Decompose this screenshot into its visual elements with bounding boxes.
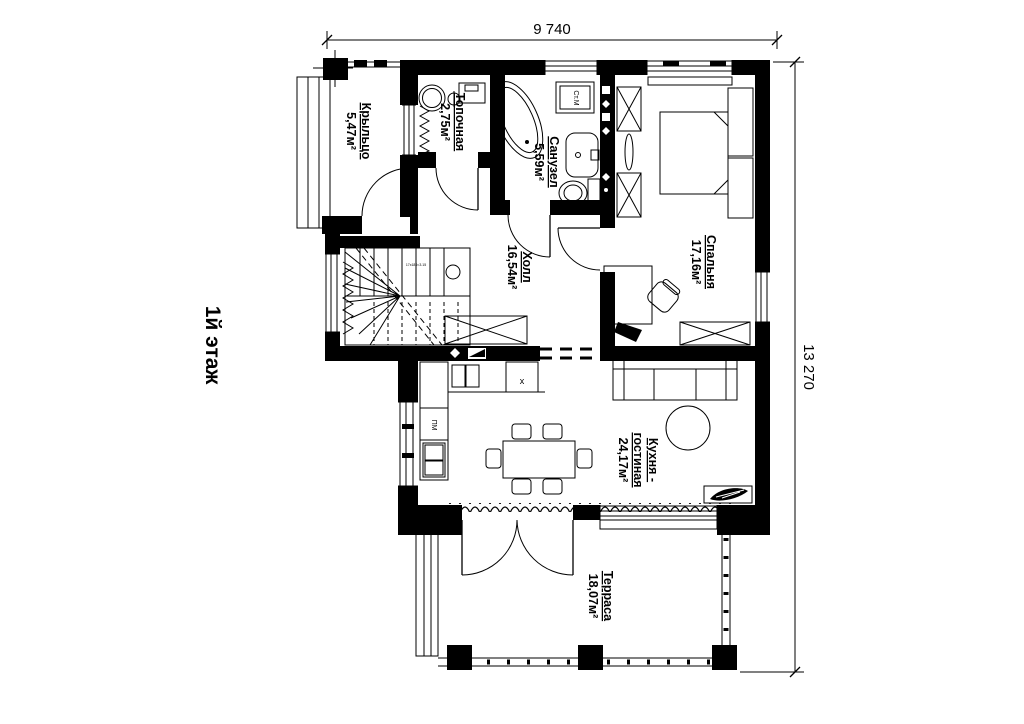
terrace-steps-left — [416, 524, 438, 656]
room-area: 16,54м² — [505, 245, 519, 290]
room-label-bedroom: Спальня 17,16м² — [689, 235, 718, 289]
stair-winder-lines — [345, 252, 400, 345]
chair — [512, 424, 531, 439]
wall-segment — [410, 216, 418, 234]
dimension-top: 9 740 — [322, 21, 782, 49]
wall-segment — [325, 216, 340, 254]
wall-segment — [490, 168, 505, 215]
electrical-symbol-square — [602, 113, 610, 121]
electrical-symbol-square — [602, 86, 610, 94]
window-bathroom-top — [545, 60, 597, 75]
dresser-cross — [680, 322, 750, 345]
room-name: Терраса — [601, 571, 615, 622]
radiator-living — [447, 503, 737, 512]
room-label-kitchen-living: Кухня - гостиная 24,17м² — [616, 432, 660, 487]
wall-segment — [398, 486, 418, 505]
window-outer-ledge — [600, 520, 717, 529]
room-name: Кухня - — [646, 438, 660, 482]
chair — [543, 479, 562, 494]
room-name: Санузел — [547, 136, 561, 187]
room-label-boiler: Топочная 2,75м² — [438, 93, 467, 151]
room-area: 2,75м² — [438, 103, 452, 141]
dishwasher-label: ПМ — [430, 420, 437, 431]
edge-dash — [374, 60, 387, 67]
wall-segment — [490, 60, 505, 168]
window-bedroom-right — [755, 272, 770, 322]
room-label-hall: Холл 16,54м² — [505, 245, 534, 290]
door-french-terrace — [462, 520, 573, 575]
plant — [704, 486, 752, 503]
kitchen-living-furniture: x ПМ — [420, 359, 752, 512]
door-bedroom — [558, 228, 600, 270]
floor-plan-drawing: 9 740 13 270 1й этаж — [0, 0, 1024, 724]
mirror — [625, 134, 633, 170]
stove-burners — [466, 365, 479, 387]
room-label-bathroom: Санузел 5,59м² — [532, 136, 561, 187]
coffee-table — [666, 406, 710, 450]
window-sill — [648, 77, 732, 85]
wall-segment — [398, 361, 418, 402]
room-name: гостиная — [631, 432, 645, 487]
window-mullion — [402, 424, 414, 429]
window-mullion — [402, 453, 414, 458]
wardrobe-cross — [617, 87, 641, 131]
electrical-symbol-dot — [604, 188, 608, 192]
room-name: Холл — [520, 251, 534, 282]
stair-newel-post — [446, 265, 460, 279]
nightstand — [728, 88, 753, 156]
sink-mark: x — [520, 376, 525, 386]
stove-burners — [452, 365, 465, 387]
dim-right-value: 13 270 — [800, 344, 817, 390]
dimension-right: 13 270 — [740, 57, 817, 677]
bedroom-furniture — [604, 87, 753, 345]
wall-segment — [600, 60, 615, 228]
fridge-door — [425, 461, 443, 475]
edge-dash — [354, 60, 367, 67]
wall-segment — [755, 60, 770, 272]
wardrobe-cross — [617, 173, 641, 217]
window-bedroom-top — [647, 60, 732, 85]
chair — [486, 449, 501, 468]
room-name: Спальня — [704, 235, 718, 289]
door-boiler — [436, 168, 478, 210]
sink-drain — [576, 153, 581, 158]
dim-top-value: 9 740 — [533, 21, 571, 38]
radiator-boiler — [420, 106, 429, 155]
svg-text:1й этаж: 1й этаж — [201, 306, 224, 386]
terrace-structure — [416, 524, 737, 670]
wall-segment — [325, 332, 340, 348]
dining-table — [503, 441, 575, 478]
stair-edge-wall — [340, 236, 420, 248]
room-area: 5,59м² — [532, 143, 546, 181]
room-area: 24,17м² — [616, 438, 630, 483]
terrace-column — [447, 645, 472, 670]
room-area: 17,16м² — [689, 240, 703, 285]
wall-segment — [400, 155, 418, 217]
opening-hall-kitchen — [540, 349, 600, 358]
sofa — [613, 359, 737, 400]
window-porch-boiler — [402, 105, 416, 155]
stair-treads-upper — [360, 248, 444, 296]
office-chair — [645, 276, 683, 314]
floor-title: 1й этаж — [201, 306, 224, 386]
boiler-panel — [465, 85, 478, 91]
room-area: 18,07м² — [586, 574, 600, 619]
room-name: Топочная — [453, 93, 467, 151]
terrace-column — [578, 645, 603, 670]
wall-segment — [505, 200, 510, 215]
porch-steps — [297, 77, 330, 228]
toilet-bowl-inner — [564, 185, 582, 201]
desk-lamp — [614, 322, 642, 342]
wall-segment — [325, 346, 540, 361]
room-area: 5,47м² — [344, 112, 358, 150]
wall-segment — [400, 60, 545, 75]
wardrobe-cross — [445, 316, 527, 344]
nightstand — [728, 158, 753, 218]
wall-segment — [478, 152, 505, 168]
window-kitchen-left — [398, 402, 418, 486]
fridge-door — [425, 445, 443, 460]
room-name: Крыльцо — [359, 103, 373, 160]
terrace-column — [712, 645, 737, 670]
blanket-folds — [714, 112, 728, 194]
wall-segment — [600, 272, 615, 346]
chair — [543, 424, 562, 439]
bath-drain — [525, 140, 529, 144]
window-hall-left — [325, 254, 340, 332]
wall-segment — [400, 60, 418, 105]
room-label-terrace: Терраса 18,07м² — [586, 571, 615, 622]
stair-note: 17x180=3.15 — [406, 263, 426, 267]
bed — [660, 112, 728, 194]
curtain-bracket — [663, 61, 679, 66]
doors — [362, 168, 600, 575]
room-label-porch: Крыльцо 5,47м² — [344, 103, 373, 160]
porch-edge — [313, 50, 400, 87]
washing-machine-label: Ст.М — [572, 90, 579, 105]
sink-bathroom — [566, 133, 598, 177]
curtain-bracket — [710, 61, 726, 66]
staircase: 17x180=3.15 — [343, 248, 470, 345]
chair — [577, 449, 592, 468]
chair — [512, 479, 531, 494]
